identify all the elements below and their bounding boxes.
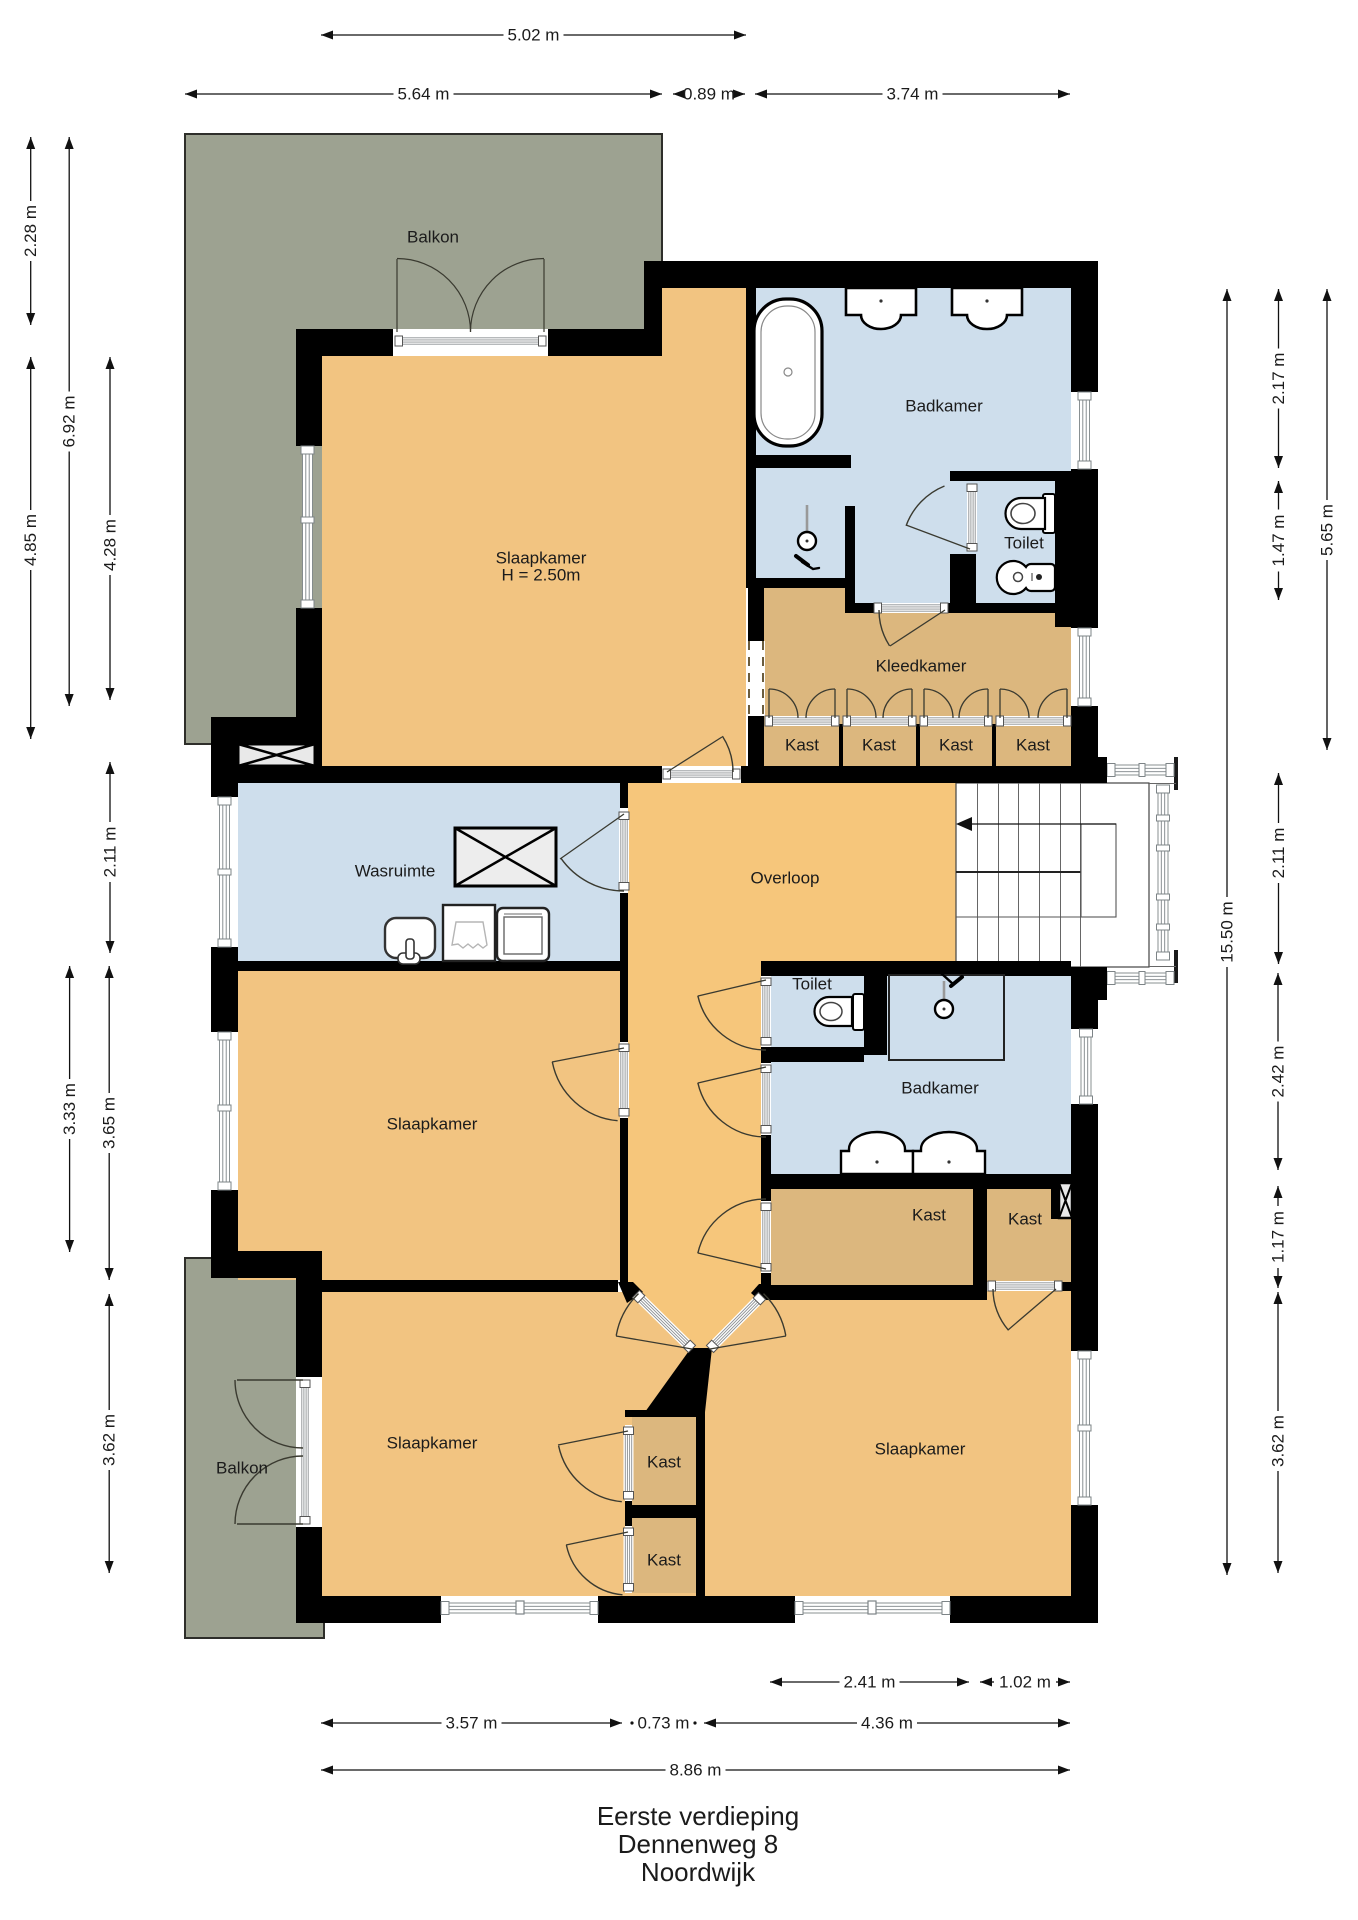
svg-text:3.62 m: 3.62 m bbox=[1269, 1415, 1288, 1467]
svg-text:5.02 m: 5.02 m bbox=[508, 26, 560, 45]
svg-text:1.02 m: 1.02 m bbox=[999, 1673, 1051, 1692]
svg-text:Eerste verdieping: Eerste verdieping bbox=[597, 1801, 799, 1831]
svg-text:6.92 m: 6.92 m bbox=[60, 396, 79, 448]
svg-text:2.11 m: 2.11 m bbox=[1269, 828, 1288, 879]
svg-text:Kast: Kast bbox=[785, 736, 819, 755]
svg-text:Toilet: Toilet bbox=[1004, 534, 1044, 553]
svg-text:4.28 m: 4.28 m bbox=[101, 519, 120, 571]
svg-text:2.41 m: 2.41 m bbox=[844, 1673, 896, 1692]
svg-text:0.89 m: 0.89 m bbox=[683, 85, 735, 104]
svg-text:Kast: Kast bbox=[1016, 736, 1050, 755]
svg-text:Balkon: Balkon bbox=[407, 228, 459, 247]
svg-text:Dennenweg 8: Dennenweg 8 bbox=[618, 1829, 778, 1859]
svg-text:Kast: Kast bbox=[939, 736, 973, 755]
svg-text:Balkon: Balkon bbox=[216, 1459, 268, 1478]
svg-text:3.57 m: 3.57 m bbox=[446, 1714, 498, 1733]
svg-text:Kast: Kast bbox=[912, 1206, 946, 1225]
svg-text:0.73 m: 0.73 m bbox=[638, 1714, 690, 1733]
svg-text:2.42 m: 2.42 m bbox=[1269, 1046, 1288, 1098]
svg-text:2.28 m: 2.28 m bbox=[21, 205, 40, 257]
svg-text:2.11 m: 2.11 m bbox=[101, 827, 120, 878]
svg-text:2.17 m: 2.17 m bbox=[1269, 353, 1288, 405]
svg-text:3.62 m: 3.62 m bbox=[100, 1414, 119, 1466]
svg-text:Slaapkamer: Slaapkamer bbox=[875, 1440, 966, 1459]
svg-text:5.64 m: 5.64 m bbox=[398, 85, 450, 104]
svg-text:1.17 m: 1.17 m bbox=[1269, 1211, 1288, 1263]
svg-text:Kast: Kast bbox=[862, 736, 896, 755]
svg-text:Badkamer: Badkamer bbox=[901, 1079, 979, 1098]
svg-text:3.33 m: 3.33 m bbox=[60, 1083, 79, 1135]
svg-text:H = 2.50m: H = 2.50m bbox=[502, 566, 581, 585]
svg-text:Toilet: Toilet bbox=[792, 975, 832, 994]
svg-text:4.85 m: 4.85 m bbox=[21, 514, 40, 566]
svg-text:3.65 m: 3.65 m bbox=[100, 1097, 119, 1149]
svg-text:4.36 m: 4.36 m bbox=[861, 1714, 913, 1733]
svg-text:Kleedkamer: Kleedkamer bbox=[876, 657, 967, 676]
svg-text:Overloop: Overloop bbox=[751, 869, 820, 888]
svg-text:Kast: Kast bbox=[647, 1551, 681, 1570]
svg-text:1.47 m: 1.47 m bbox=[1269, 515, 1288, 567]
svg-text:3.74 m: 3.74 m bbox=[887, 85, 939, 104]
svg-text:Badkamer: Badkamer bbox=[905, 397, 983, 416]
svg-text:Noordwijk: Noordwijk bbox=[641, 1857, 756, 1887]
svg-text:5.65 m: 5.65 m bbox=[1318, 504, 1337, 556]
svg-text:8.86 m: 8.86 m bbox=[670, 1761, 722, 1780]
svg-text:Wasruimte: Wasruimte bbox=[355, 862, 436, 881]
svg-text:Slaapkamer: Slaapkamer bbox=[387, 1434, 478, 1453]
svg-text:Kast: Kast bbox=[647, 1453, 681, 1472]
svg-text:15.50 m: 15.50 m bbox=[1218, 901, 1237, 962]
svg-text:Kast: Kast bbox=[1008, 1210, 1042, 1229]
svg-text:Slaapkamer: Slaapkamer bbox=[387, 1115, 478, 1134]
